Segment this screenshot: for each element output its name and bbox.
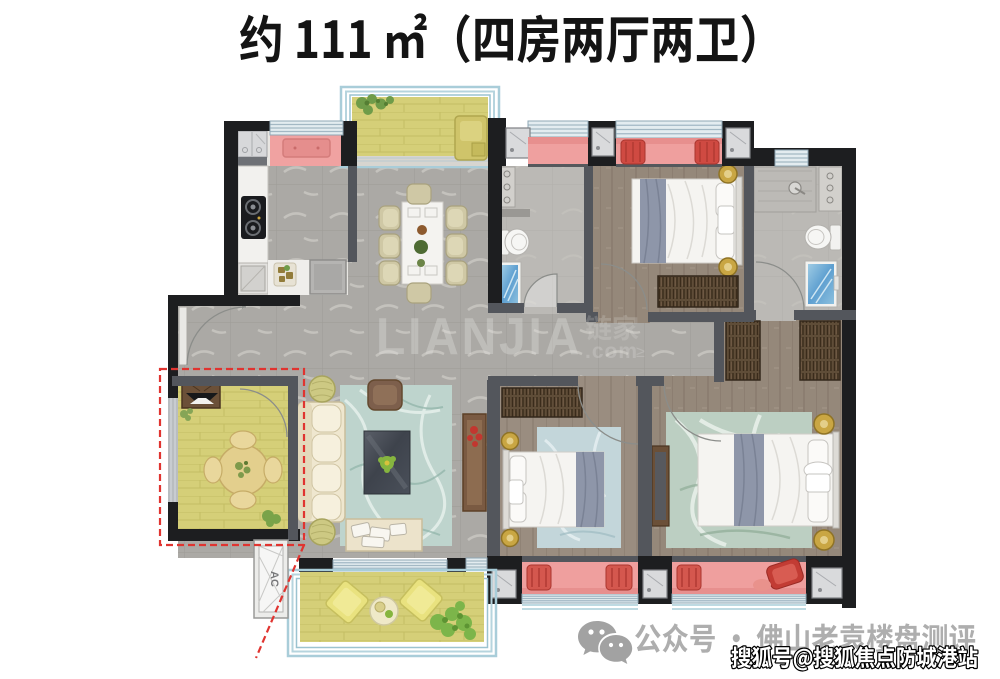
- svg-text:AC: AC: [268, 571, 280, 587]
- svg-text:≥: ≥: [636, 344, 645, 361]
- svg-text:.com: .com: [585, 340, 638, 363]
- svg-text:LIANJIA: LIANJIA: [376, 308, 582, 366]
